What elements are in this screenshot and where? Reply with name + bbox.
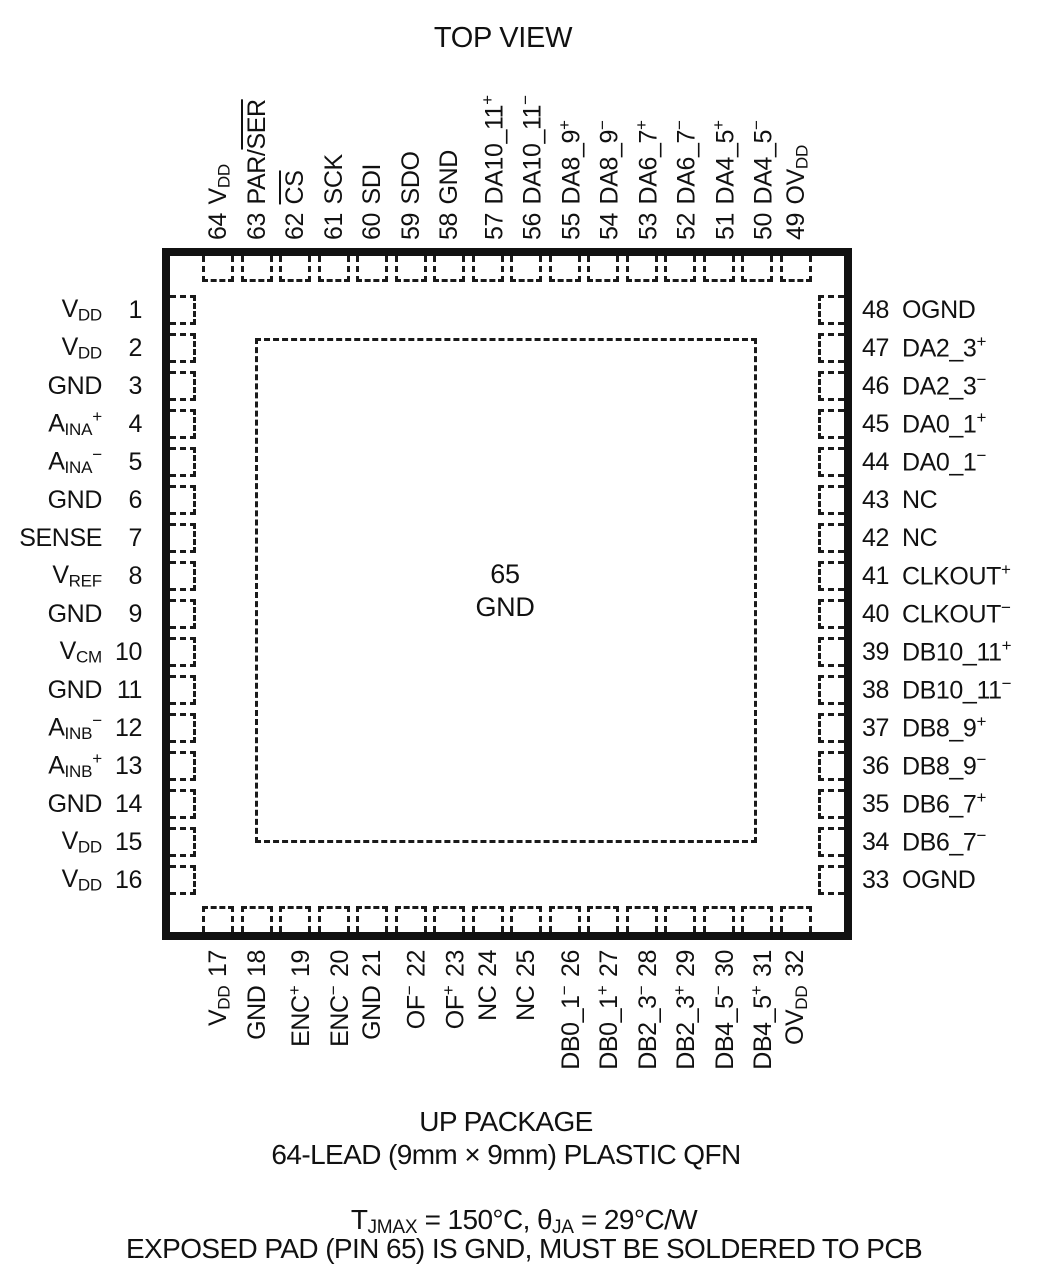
pin-label-23: OF+ 23 (436, 950, 462, 1029)
pin-pad-59 (395, 256, 427, 282)
pin-label-54: 54 DA8_9− (590, 120, 616, 240)
pin-number: 14 (112, 790, 142, 819)
pin-name: VDD (62, 865, 102, 896)
pin-number: 5 (112, 448, 142, 477)
pin-number: 36 (862, 752, 892, 781)
pin-label-55: 55 DA8_9+ (552, 120, 578, 240)
pin-label-48: 48OGND (862, 294, 975, 326)
pin-pad-4 (170, 409, 196, 439)
pin-pad-40 (818, 599, 844, 629)
pin-label-8: VREF8 (52, 560, 142, 592)
exposed-pad-name: GND (405, 591, 605, 624)
pin-pad-9 (170, 599, 196, 629)
pin-label-31: DB4_5+ 31 (744, 950, 770, 1070)
pin-label-15: VDD15 (62, 826, 142, 858)
pin-label-52: 52 DA6_7− (667, 120, 693, 240)
pin-name: OGND (902, 296, 975, 325)
pin-label-5: AINA−5 (48, 446, 142, 478)
pin-pad-36 (818, 751, 844, 781)
pin-label-21: GND 21 (359, 950, 385, 1040)
pin-pad-1 (170, 295, 196, 325)
pin-name: DA2_3− (902, 370, 986, 401)
pin-label-38: 38DB10_11− (862, 674, 1011, 706)
pin-pad-48 (818, 295, 844, 325)
pin-number: 37 (862, 714, 892, 743)
pin-name: GND (48, 372, 102, 401)
package-description: 64-LEAD (9mm × 9mm) PLASTIC QFN (106, 1139, 906, 1171)
pin-pad-18 (241, 906, 273, 932)
pin-pad-8 (170, 561, 196, 591)
pin-number: 45 (862, 410, 892, 439)
pin-pad-45 (818, 409, 844, 439)
pin-pad-33 (818, 865, 844, 895)
exposed-pad-note: EXPOSED PAD (PIN 65) IS GND, MUST BE SOL… (124, 1233, 924, 1265)
pin-pad-49 (780, 256, 812, 282)
pin-name: VCM (60, 637, 102, 668)
pin-name: DB8_9− (902, 750, 986, 781)
pin-label-13: AINB+13 (48, 750, 142, 782)
pin-pad-35 (818, 789, 844, 819)
exposed-pad-number: 65 (405, 558, 605, 591)
pin-name: CLKOUT− (902, 598, 1011, 629)
pin-pad-29 (664, 906, 696, 932)
pin-pad-56 (510, 256, 542, 282)
pin-name: NC (902, 524, 937, 553)
pin-label-61: 61 SCK (321, 154, 347, 240)
pin-pad-55 (549, 256, 581, 282)
pin-number: 40 (862, 600, 892, 629)
pin-label-6: GND6 (48, 484, 142, 516)
pin-number: 6 (112, 486, 142, 515)
pin-pad-54 (587, 256, 619, 282)
pin-name: DA2_3+ (902, 332, 986, 363)
pin-pad-10 (170, 637, 196, 667)
pin-name: DA0_1+ (902, 408, 986, 439)
pin-label-62: 62 CS (282, 171, 308, 241)
pin-name: DB6_7− (902, 826, 986, 857)
pin-pad-6 (170, 485, 196, 515)
pin-pad-16 (170, 865, 196, 895)
pin-label-64: 64 VDD (205, 164, 231, 240)
pin-label-43: 43NC (862, 484, 937, 516)
pin-number: 15 (112, 828, 142, 857)
pin-number: 2 (112, 334, 142, 363)
pin-name: GND (48, 600, 102, 629)
pin-label-11: GND11 (48, 674, 142, 706)
pin-pad-32 (780, 906, 812, 932)
pin-pad-44 (818, 447, 844, 477)
pin-label-36: 36DB8_9− (862, 750, 986, 782)
pin-label-49: 49 OVDD (783, 145, 809, 240)
pin-label-1: VDD1 (62, 294, 142, 326)
pin-name: CLKOUT+ (902, 560, 1011, 591)
pin-number: 1 (112, 296, 142, 325)
pin-label-25: NC 25 (513, 950, 539, 1021)
pin-pad-11 (170, 675, 196, 705)
pin-name: AINA+ (48, 407, 102, 440)
pin-number: 7 (112, 524, 142, 553)
pin-label-19: ENC+ 19 (282, 950, 308, 1047)
pin-pad-28 (626, 906, 658, 932)
qfn-pinout-diagram: TOP VIEW 65 GND 64 VDD63 PAR/SER62 CS61 … (0, 0, 1050, 1282)
pin-label-37: 37DB8_9+ (862, 712, 986, 744)
pin-name: DB10_11− (902, 674, 1011, 705)
pin-name: AINA− (48, 445, 102, 478)
pin-number: 13 (112, 752, 142, 781)
pin-name: GND (48, 790, 102, 819)
pin-pad-20 (318, 906, 350, 932)
pin-pad-2 (170, 333, 196, 363)
pin-pad-53 (626, 256, 658, 282)
exposed-pad-label: 65 GND (405, 558, 605, 624)
pin-label-56: 56 DA10_11− (513, 95, 539, 240)
package-name: UP PACKAGE (106, 1106, 906, 1138)
pin-label-39: 39DB10_11+ (862, 636, 1011, 668)
pin-label-30: DB4_5− 30 (706, 950, 732, 1070)
pin-pad-61 (318, 256, 350, 282)
pin-pad-21 (356, 906, 388, 932)
pin-pad-58 (433, 256, 465, 282)
pin-pad-47 (818, 333, 844, 363)
pin-pad-23 (433, 906, 465, 932)
pin-name: AINB− (48, 711, 102, 744)
pin-pad-22 (395, 906, 427, 932)
pin-pad-30 (703, 906, 735, 932)
pin-label-12: AINB−12 (48, 712, 142, 744)
pin-name: DB8_9+ (902, 712, 986, 743)
pin-label-34: 34DB6_7− (862, 826, 986, 858)
pin-pad-50 (741, 256, 773, 282)
pin-name: DA0_1− (902, 446, 986, 477)
pin-label-58: 58 GND (436, 150, 462, 240)
pin-pad-52 (664, 256, 696, 282)
pin-label-41: 41CLKOUT+ (862, 560, 1011, 592)
pin-pad-31 (741, 906, 773, 932)
pin-number: 35 (862, 790, 892, 819)
pin-label-42: 42NC (862, 522, 937, 554)
pin-pad-12 (170, 713, 196, 743)
pin-number: 16 (112, 866, 142, 895)
pin-number: 46 (862, 372, 892, 401)
pin-number: 10 (112, 638, 142, 667)
pin-pad-7 (170, 523, 196, 553)
pin-number: 12 (112, 714, 142, 743)
pin-pad-39 (818, 637, 844, 667)
pin-pad-37 (818, 713, 844, 743)
pin-label-10: VCM10 (60, 636, 142, 668)
pin-name: OGND (902, 866, 975, 895)
pin-label-28: DB2_3− 28 (629, 950, 655, 1070)
pin-pad-43 (818, 485, 844, 515)
pin-pad-17 (202, 906, 234, 932)
pin-number: 8 (112, 562, 142, 591)
pin-name: DB10_11+ (902, 636, 1011, 667)
pin-label-26: DB0_1− 26 (552, 950, 578, 1070)
pin-name: VDD (62, 295, 102, 326)
diagram-title: TOP VIEW (203, 22, 803, 55)
pin-name: GND (48, 486, 102, 515)
pin-name: GND (48, 676, 102, 705)
pin-label-17: VDD 17 (205, 950, 231, 1026)
pin-label-14: GND14 (48, 788, 142, 820)
pin-label-33: 33OGND (862, 864, 975, 896)
pin-label-3: GND3 (48, 370, 142, 402)
pin-pad-62 (279, 256, 311, 282)
pin-label-59: 59 SDO (398, 151, 424, 240)
pin-label-18: GND 18 (244, 950, 270, 1040)
pin-label-63: 63 PAR/SER (244, 99, 270, 240)
pin-pad-19 (279, 906, 311, 932)
pin-pad-42 (818, 523, 844, 553)
pin-number: 9 (112, 600, 142, 629)
pin-label-53: 53 DA6_7+ (629, 120, 655, 240)
pin-number: 11 (112, 676, 142, 705)
pin-label-47: 47DA2_3+ (862, 332, 986, 364)
pin-pad-46 (818, 371, 844, 401)
pin-number: 38 (862, 676, 892, 705)
pin-label-2: VDD2 (62, 332, 142, 364)
pin-label-57: 57 DA10_11+ (475, 95, 501, 240)
pin-number: 34 (862, 828, 892, 857)
pin-pad-15 (170, 827, 196, 857)
pin-label-24: NC 24 (475, 950, 501, 1021)
pin-number: 33 (862, 866, 892, 895)
pin-pad-60 (356, 256, 388, 282)
pin-pad-34 (818, 827, 844, 857)
pin-number: 42 (862, 524, 892, 553)
pin-label-46: 46DA2_3− (862, 370, 986, 402)
pin-number: 39 (862, 638, 892, 667)
pin-name: AINB+ (48, 749, 102, 782)
pin-number: 44 (862, 448, 892, 477)
pin-pad-27 (587, 906, 619, 932)
pin-label-27: DB0_1+ 27 (590, 950, 616, 1070)
pin-pad-38 (818, 675, 844, 705)
pin-number: 48 (862, 296, 892, 325)
pin-pad-51 (703, 256, 735, 282)
pin-label-35: 35DB6_7+ (862, 788, 986, 820)
pin-name: DB6_7+ (902, 788, 986, 819)
pin-label-7: SENSE7 (19, 522, 142, 554)
pin-name: VDD (62, 827, 102, 858)
pin-number: 4 (112, 410, 142, 439)
pin-label-51: 51 DA4_5+ (706, 120, 732, 240)
pin-name: VREF (52, 561, 102, 592)
pin-name: SENSE (19, 524, 102, 553)
pin-label-4: AINA+4 (48, 408, 142, 440)
pin-pad-26 (549, 906, 581, 932)
pin-pad-3 (170, 371, 196, 401)
pin-pad-41 (818, 561, 844, 591)
pin-label-60: 60 SDI (359, 164, 385, 240)
pin-label-22: OF− 22 (398, 950, 424, 1029)
pin-name: NC (902, 486, 937, 515)
pin-label-40: 40CLKOUT− (862, 598, 1011, 630)
pin-pad-13 (170, 751, 196, 781)
pin-number: 43 (862, 486, 892, 515)
pin-number: 47 (862, 334, 892, 363)
pin-label-44: 44DA0_1− (862, 446, 986, 478)
pin-label-45: 45DA0_1+ (862, 408, 986, 440)
pin-label-32: OVDD 32 (783, 950, 809, 1045)
pin-label-9: GND9 (48, 598, 142, 630)
pin-number: 3 (112, 372, 142, 401)
pin-pad-25 (510, 906, 542, 932)
pin-pad-24 (472, 906, 504, 932)
pin-number: 41 (862, 562, 892, 591)
pin-pad-5 (170, 447, 196, 477)
pin-label-29: DB2_3+ 29 (667, 950, 693, 1070)
pin-label-20: ENC− 20 (321, 950, 347, 1047)
pin-name: VDD (62, 333, 102, 364)
pin-pad-57 (472, 256, 504, 282)
pin-pad-14 (170, 789, 196, 819)
pin-pad-64 (202, 256, 234, 282)
pin-label-16: VDD16 (62, 864, 142, 896)
pin-pad-63 (241, 256, 273, 282)
pin-label-50: 50 DA4_5− (744, 120, 770, 240)
